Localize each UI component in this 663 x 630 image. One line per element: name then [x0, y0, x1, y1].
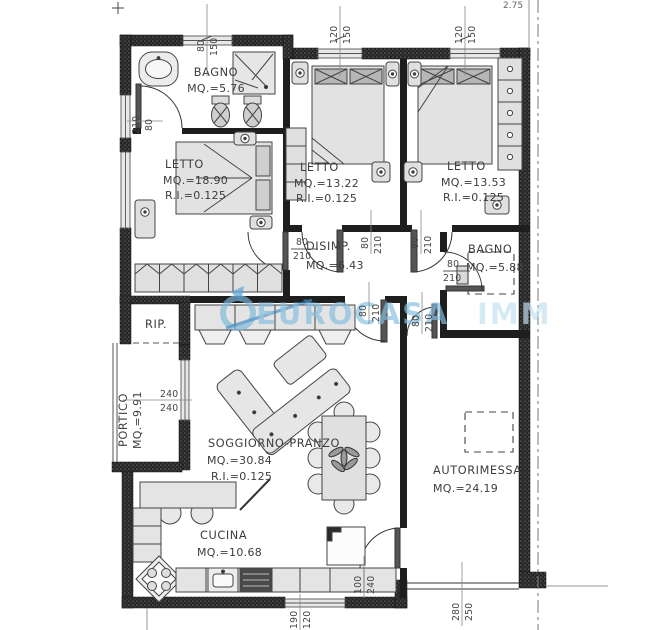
watermark-brand-suffix: IMM — [477, 297, 552, 331]
wardrobe-row — [135, 264, 282, 292]
svg-text:R.I.=0.125: R.I.=0.125 — [211, 470, 272, 483]
svg-text:150: 150 — [209, 38, 220, 56]
svg-text:150: 150 — [467, 26, 478, 44]
label-bagno1: BAGNO — [194, 66, 238, 79]
cucina-garage-door-leaf — [395, 528, 400, 568]
svg-text:100: 100 — [353, 576, 364, 594]
svg-text:MQ.=10.68: MQ.=10.68 — [197, 546, 262, 559]
svg-text:80: 80 — [410, 237, 421, 249]
label-letto3: LETTO — [447, 160, 486, 173]
cabinet-column — [133, 508, 161, 562]
bidet — [244, 96, 262, 127]
toilet — [212, 96, 230, 127]
svg-text:MQ.=13.22: MQ.=13.22 — [294, 177, 359, 190]
pantry-return — [327, 527, 365, 565]
label-rip: RIP. — [145, 318, 167, 331]
svg-text:R.I.=0.125: R.I.=0.125 — [443, 191, 504, 204]
floor-plan-svg: EUROCASA IMM BAGNO MQ.=5.76 LETTO MQ.=18… — [0, 0, 663, 630]
svg-text:240: 240 — [160, 403, 178, 414]
svg-text:80: 80 — [358, 305, 369, 317]
cucina-entry-leaf — [240, 479, 270, 510]
svg-text:120: 120 — [302, 611, 313, 629]
svg-text:80: 80 — [144, 119, 155, 131]
svg-text:210: 210 — [373, 236, 384, 254]
dim-bagno1-door: 210 80 — [127, 116, 163, 134]
svg-text:80: 80 — [360, 237, 371, 249]
label-disimp: DISIMP. — [306, 240, 351, 253]
label-soggiorno: SOGGIORNO-PRANZO — [208, 437, 340, 450]
label-cucina: CUCINA — [200, 529, 247, 542]
dim-garage-gate: 280 250 — [451, 562, 475, 626]
label-letto2: LETTO — [300, 161, 339, 174]
svg-text:190: 190 — [289, 611, 300, 629]
svg-text:MQ.=5.88: MQ.=5.88 — [466, 261, 524, 274]
elevation-marker: 2.75 — [503, 1, 523, 11]
dining-set — [308, 402, 380, 514]
label-bagno2: BAGNO — [468, 243, 512, 256]
svg-text:MQ.=5.76: MQ.=5.76 — [187, 82, 245, 95]
svg-text:210: 210 — [371, 304, 382, 322]
corner-stove — [136, 556, 182, 602]
svg-text:210: 210 — [293, 251, 311, 262]
floor-plan-page: EUROCASA IMM BAGNO MQ.=5.76 LETTO MQ.=18… — [0, 0, 663, 630]
garage-pillar-dashed — [465, 412, 513, 452]
svg-text:R.I.=0.125: R.I.=0.125 — [296, 192, 357, 205]
wardrobe-letto3 — [498, 58, 522, 170]
svg-text:80: 80 — [296, 237, 308, 248]
svg-text:210: 210 — [443, 273, 461, 284]
label-portico: PORTICO — [117, 393, 130, 447]
svg-text:MQ.=18.90: MQ.=18.90 — [163, 174, 228, 187]
svg-text:210: 210 — [423, 236, 434, 254]
svg-text:80: 80 — [411, 315, 422, 327]
letto1-door-leaf — [283, 232, 288, 270]
svg-text:250: 250 — [464, 603, 475, 621]
svg-text:210: 210 — [131, 116, 142, 134]
svg-text:120: 120 — [454, 26, 465, 44]
svg-text:280: 280 — [451, 603, 462, 621]
svg-text:MQ.=30.84: MQ.=30.84 — [207, 454, 272, 467]
svg-text:R.I.=0.125: R.I.=0.125 — [165, 189, 226, 202]
svg-text:120: 120 — [329, 26, 340, 44]
svg-text:240: 240 — [160, 389, 178, 400]
bar-counter — [140, 482, 236, 508]
letto3-door-leaf — [411, 230, 417, 272]
svg-text:240: 240 — [366, 576, 377, 594]
svg-text:MQ.=6.43: MQ.=6.43 — [306, 259, 364, 272]
watermark: EUROCASA IMM — [223, 286, 552, 331]
label-autorimessa: AUTORIMESSA — [433, 464, 522, 477]
svg-text:210: 210 — [424, 314, 435, 332]
svg-text:150: 150 — [342, 26, 353, 44]
svg-text:MQ.=24.19: MQ.=24.19 — [433, 482, 498, 495]
oven — [240, 568, 272, 592]
svg-text:80: 80 — [196, 40, 207, 52]
bagno2-door-leaf — [446, 286, 484, 291]
svg-text:80: 80 — [447, 259, 459, 270]
bedroom1-furniture — [135, 132, 282, 292]
label-letto1: LETTO — [165, 158, 204, 171]
kitchen-sink — [208, 568, 238, 592]
svg-text:MQ.=13.53: MQ.=13.53 — [441, 176, 506, 189]
